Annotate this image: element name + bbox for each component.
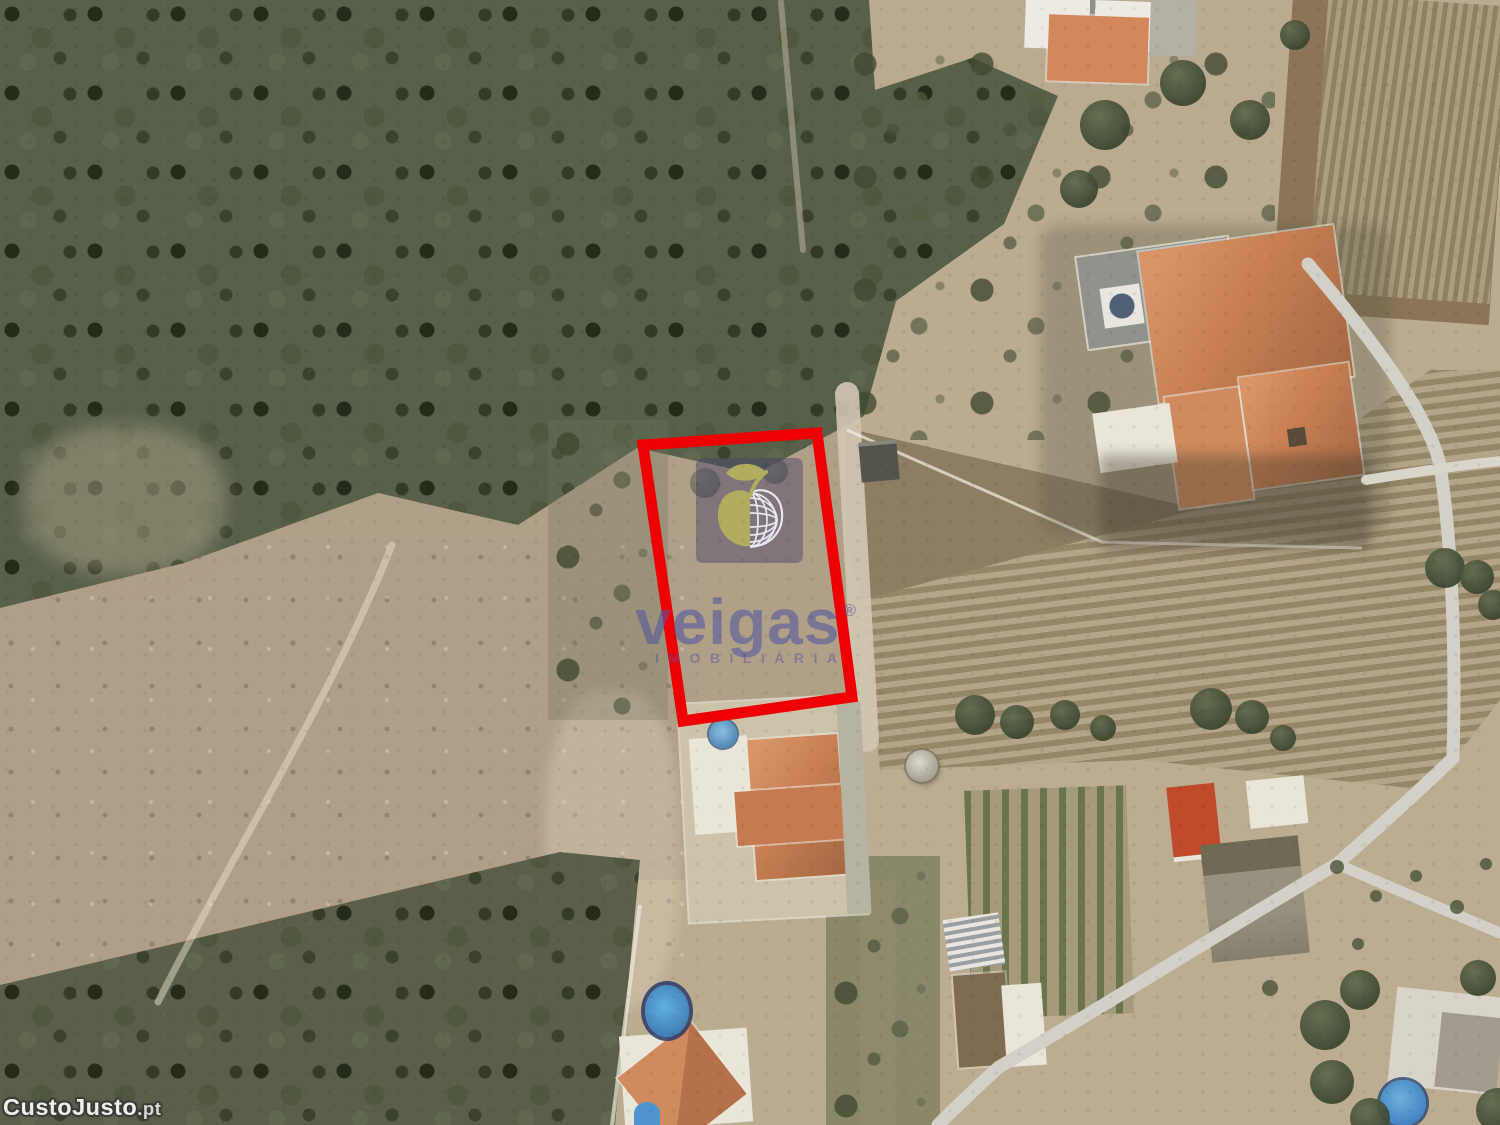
aerial-photo: veigas® IMOBILIÁRIA CustoJusto.pt (0, 0, 1500, 1125)
apple-globe-icon (696, 458, 803, 563)
water-tank (906, 750, 938, 782)
scrub-left-of-plot (548, 420, 668, 720)
site-name: CustoJusto (3, 1094, 137, 1120)
agency-tagline: IMOBILIÁRIA (610, 650, 882, 666)
registered-mark: ® (843, 601, 857, 620)
tree (1340, 970, 1380, 1010)
tree (1460, 960, 1496, 996)
olive-tree (1450, 900, 1464, 914)
site-tld: .pt (137, 1098, 161, 1119)
tree (1310, 1060, 1354, 1104)
parcel-house-roof-wing (734, 784, 855, 846)
tree (1000, 705, 1034, 739)
bottomright-gray-roof (1434, 1012, 1500, 1093)
top-house-garage (1149, 0, 1197, 57)
bottom-house-white-part (1001, 983, 1047, 1068)
olive-tree (1410, 870, 1422, 882)
site-watermark: CustoJusto.pt (3, 1094, 161, 1121)
white-outbuilding (1246, 775, 1309, 829)
tree (1280, 20, 1310, 50)
bottomleft-pool (645, 985, 689, 1037)
shed (858, 439, 899, 482)
tree (1190, 688, 1232, 730)
agency-name-text: veigas (635, 586, 840, 658)
olive-tree (1370, 890, 1382, 902)
olive-tree (1352, 938, 1364, 950)
tree (1270, 725, 1296, 751)
tree (1478, 590, 1500, 620)
tree (1460, 560, 1494, 594)
patio-pool-square (1099, 283, 1144, 328)
olive-tree (1262, 980, 1278, 996)
bottomleft-pool-2 (634, 1102, 660, 1125)
tree (1160, 60, 1206, 106)
forest-clearing (25, 425, 225, 575)
tree (955, 695, 995, 735)
parcel-pool (709, 720, 737, 748)
greenhouse (943, 912, 1006, 971)
agency-name: veigas® (610, 578, 882, 655)
olive-tree (1330, 860, 1344, 874)
tree (1090, 715, 1116, 741)
tree (1425, 548, 1465, 588)
tree (1230, 100, 1270, 140)
veigas-logo-square (696, 458, 803, 563)
tree (1060, 170, 1098, 208)
tree (1300, 1000, 1350, 1050)
tree (1050, 700, 1080, 730)
house-2-yard-shadow (1100, 455, 1370, 550)
tree (1235, 700, 1269, 734)
house-2-courtyard-opening (1287, 427, 1307, 447)
tree (1080, 100, 1130, 150)
olive-tree (1480, 858, 1492, 870)
gray-house (1200, 835, 1310, 963)
top-house-orange-roof (1047, 14, 1149, 83)
